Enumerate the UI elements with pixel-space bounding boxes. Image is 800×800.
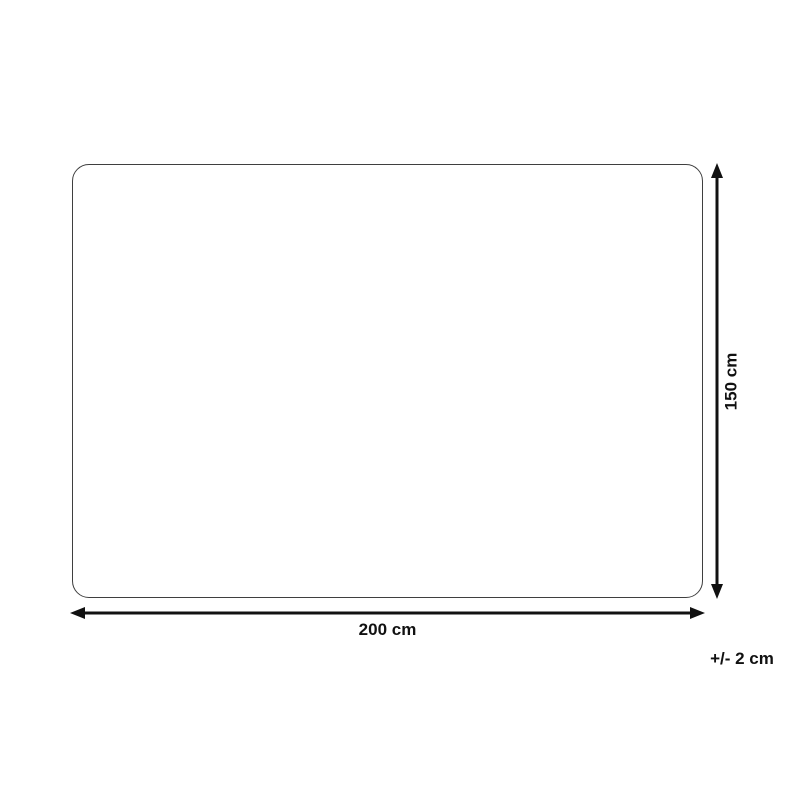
tolerance-label: +/- 2 cm (702, 648, 782, 669)
dimension-diagram: 200 cm 150 cm +/- 2 cm (0, 0, 800, 800)
width-dimension-arrow (70, 607, 705, 619)
product-outline-shape (72, 164, 703, 598)
height-dimension-label-box: 150 cm (705, 164, 757, 598)
width-dimension-label: 200 cm (72, 619, 703, 640)
height-dimension-label: 150 cm (721, 352, 742, 410)
